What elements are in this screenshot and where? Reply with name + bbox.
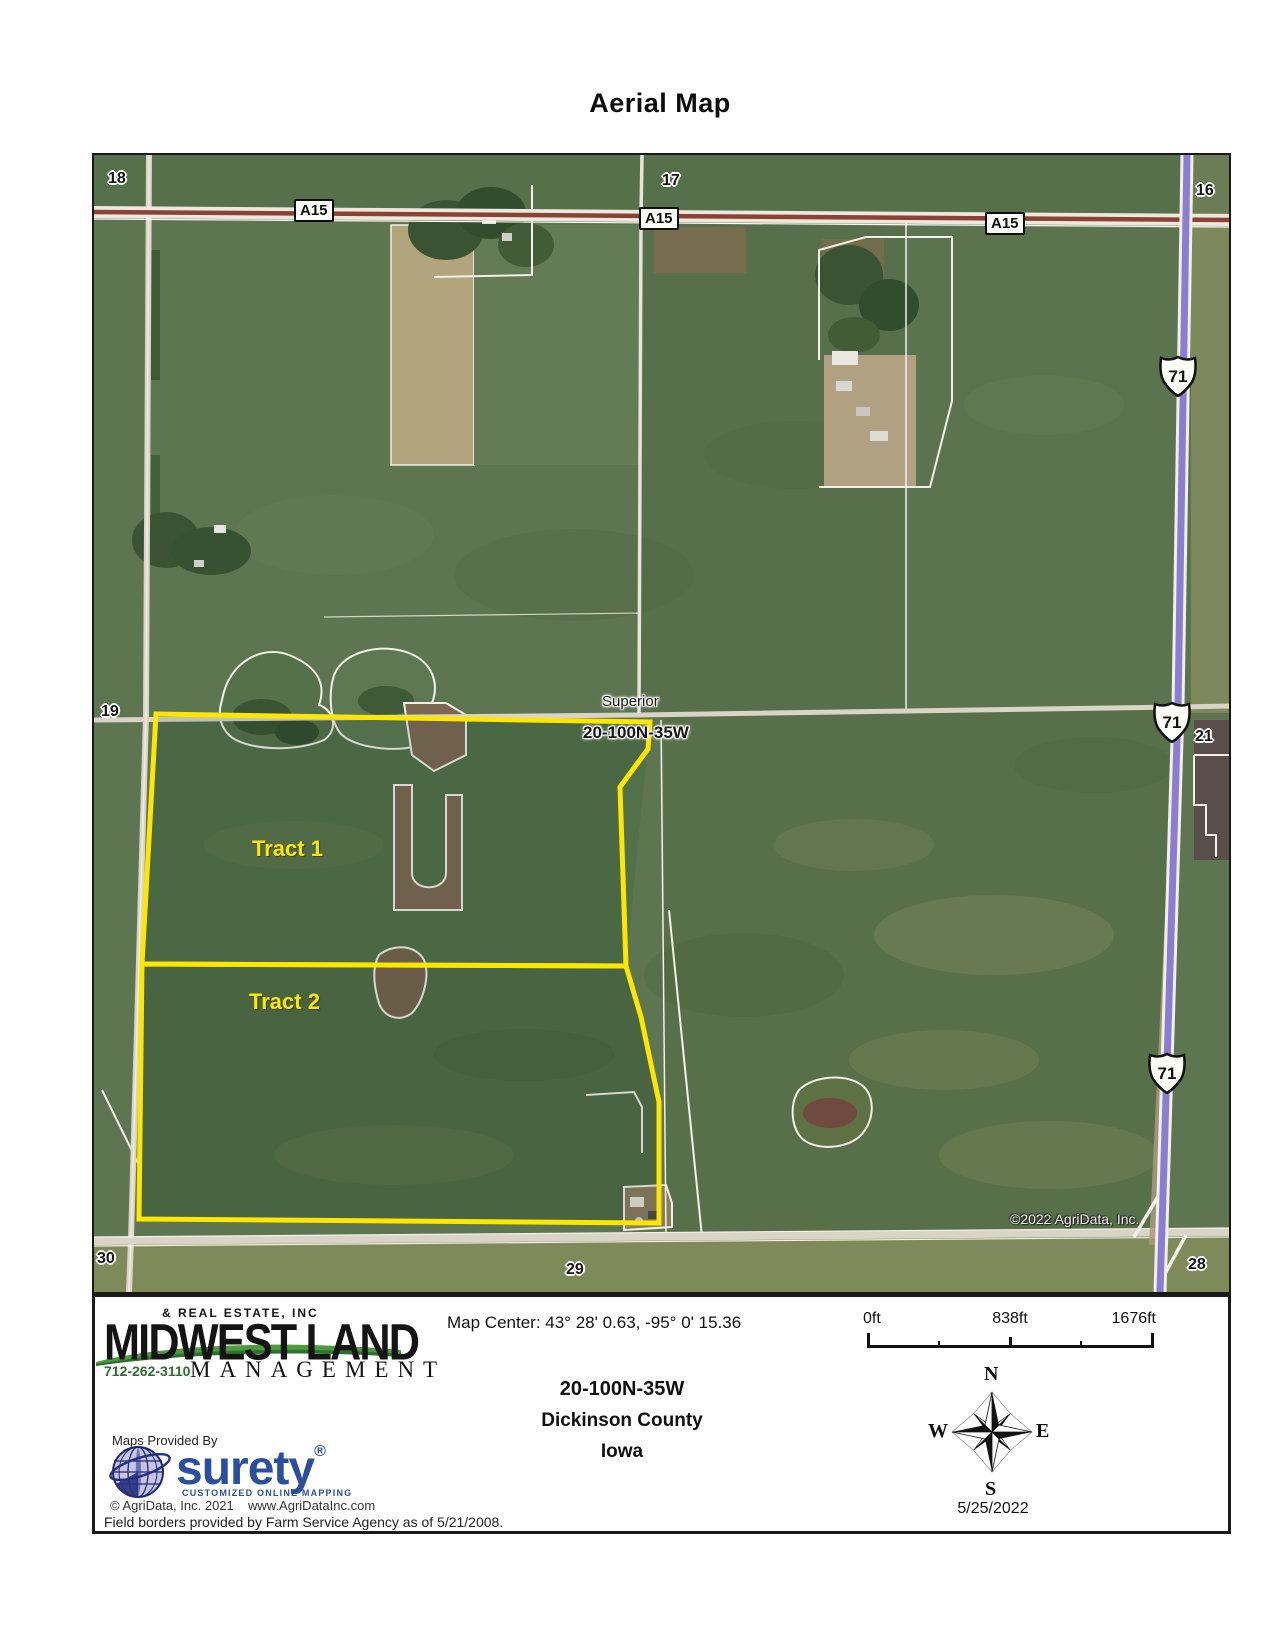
road-label-a15-east: A15 (985, 212, 1025, 235)
section-label-16: 16 (1196, 182, 1214, 200)
page-title: Aerial Map (410, 88, 910, 119)
tract-1-label: Tract 1 (252, 836, 323, 862)
location-block: 20-100N-35W Dickinson County Iowa (452, 1378, 792, 1472)
scale-label-max: 1676ft (1100, 1310, 1156, 1328)
township-label: 20-100N-35W (583, 723, 689, 743)
map-copyright: ©2022 AgriData, Inc. (1010, 1211, 1139, 1227)
road-label-a15-west: A15 (294, 199, 334, 222)
scale-tick-quarter (938, 1341, 940, 1348)
brand-phone: 712-262-3110 (104, 1363, 190, 1379)
compass-e-label: E (1036, 1420, 1049, 1443)
brand-management-text: MANAGEMENT (190, 1357, 446, 1383)
scale-label-mid: 838ft (975, 1310, 1045, 1328)
agridata-copyright: © AgriData, Inc. 2021 (110, 1498, 234, 1513)
highway-71-shield-text: 71 (1169, 367, 1188, 386)
surety-globe-icon (108, 1443, 176, 1506)
scale-tick-start (867, 1333, 870, 1348)
svg-text:71: 71 (1163, 713, 1182, 732)
tract-2-label: Tract 2 (249, 989, 320, 1015)
footer-state: Iowa (452, 1441, 792, 1463)
scale-tick-end (1151, 1333, 1154, 1348)
tract-1-outline (142, 714, 650, 966)
tract-outlines (139, 714, 659, 1223)
section-label-29: 29 (566, 1261, 584, 1279)
scale-label-zero: 0ft (863, 1310, 913, 1328)
highway-71-shield-north: 71 (1158, 355, 1198, 402)
tract-2-outline (139, 964, 659, 1223)
footer-county: Dickinson County (452, 1410, 792, 1432)
section-label-21: 21 (1195, 728, 1213, 746)
scale-tick-middle (1009, 1337, 1012, 1348)
highway-71-shield-south: 71 (1147, 1052, 1187, 1099)
svg-text:71: 71 (1158, 1064, 1177, 1083)
scale-tick-threequarter (1080, 1341, 1082, 1348)
compass-rose-icon (942, 1382, 1042, 1487)
surety-logo-text: surety® (176, 1441, 325, 1496)
compass-s-label: S (985, 1478, 996, 1501)
compass-w-label: W (928, 1420, 948, 1443)
road-label-a15-center: A15 (639, 207, 679, 230)
section-label-17: 17 (662, 172, 680, 190)
map-center-coordinates: Map Center: 43° 28' 0.63, -95° 0' 15.36 (447, 1313, 867, 1333)
place-label-superior: Superior (602, 693, 659, 710)
footer-township: 20-100N-35W (452, 1378, 792, 1401)
section-label-28: 28 (1188, 1256, 1206, 1274)
map-date: 5/25/2022 (945, 1500, 1041, 1518)
section-label-30: 30 (97, 1250, 115, 1268)
section-label-19: 19 (101, 703, 119, 721)
field-borders-disclaimer: Field borders provided by Farm Service A… (104, 1514, 503, 1530)
section-label-18: 18 (108, 170, 126, 188)
aerial-map-page: { "page": { "title": "Aerial Map" }, "ma… (0, 0, 1275, 1650)
agridata-website: www.AgriDataInc.com (248, 1498, 375, 1513)
registered-mark: ® (314, 1443, 325, 1460)
compass-n-label: N (984, 1363, 998, 1386)
highway-71-shield-middle: 71 (1152, 701, 1192, 748)
